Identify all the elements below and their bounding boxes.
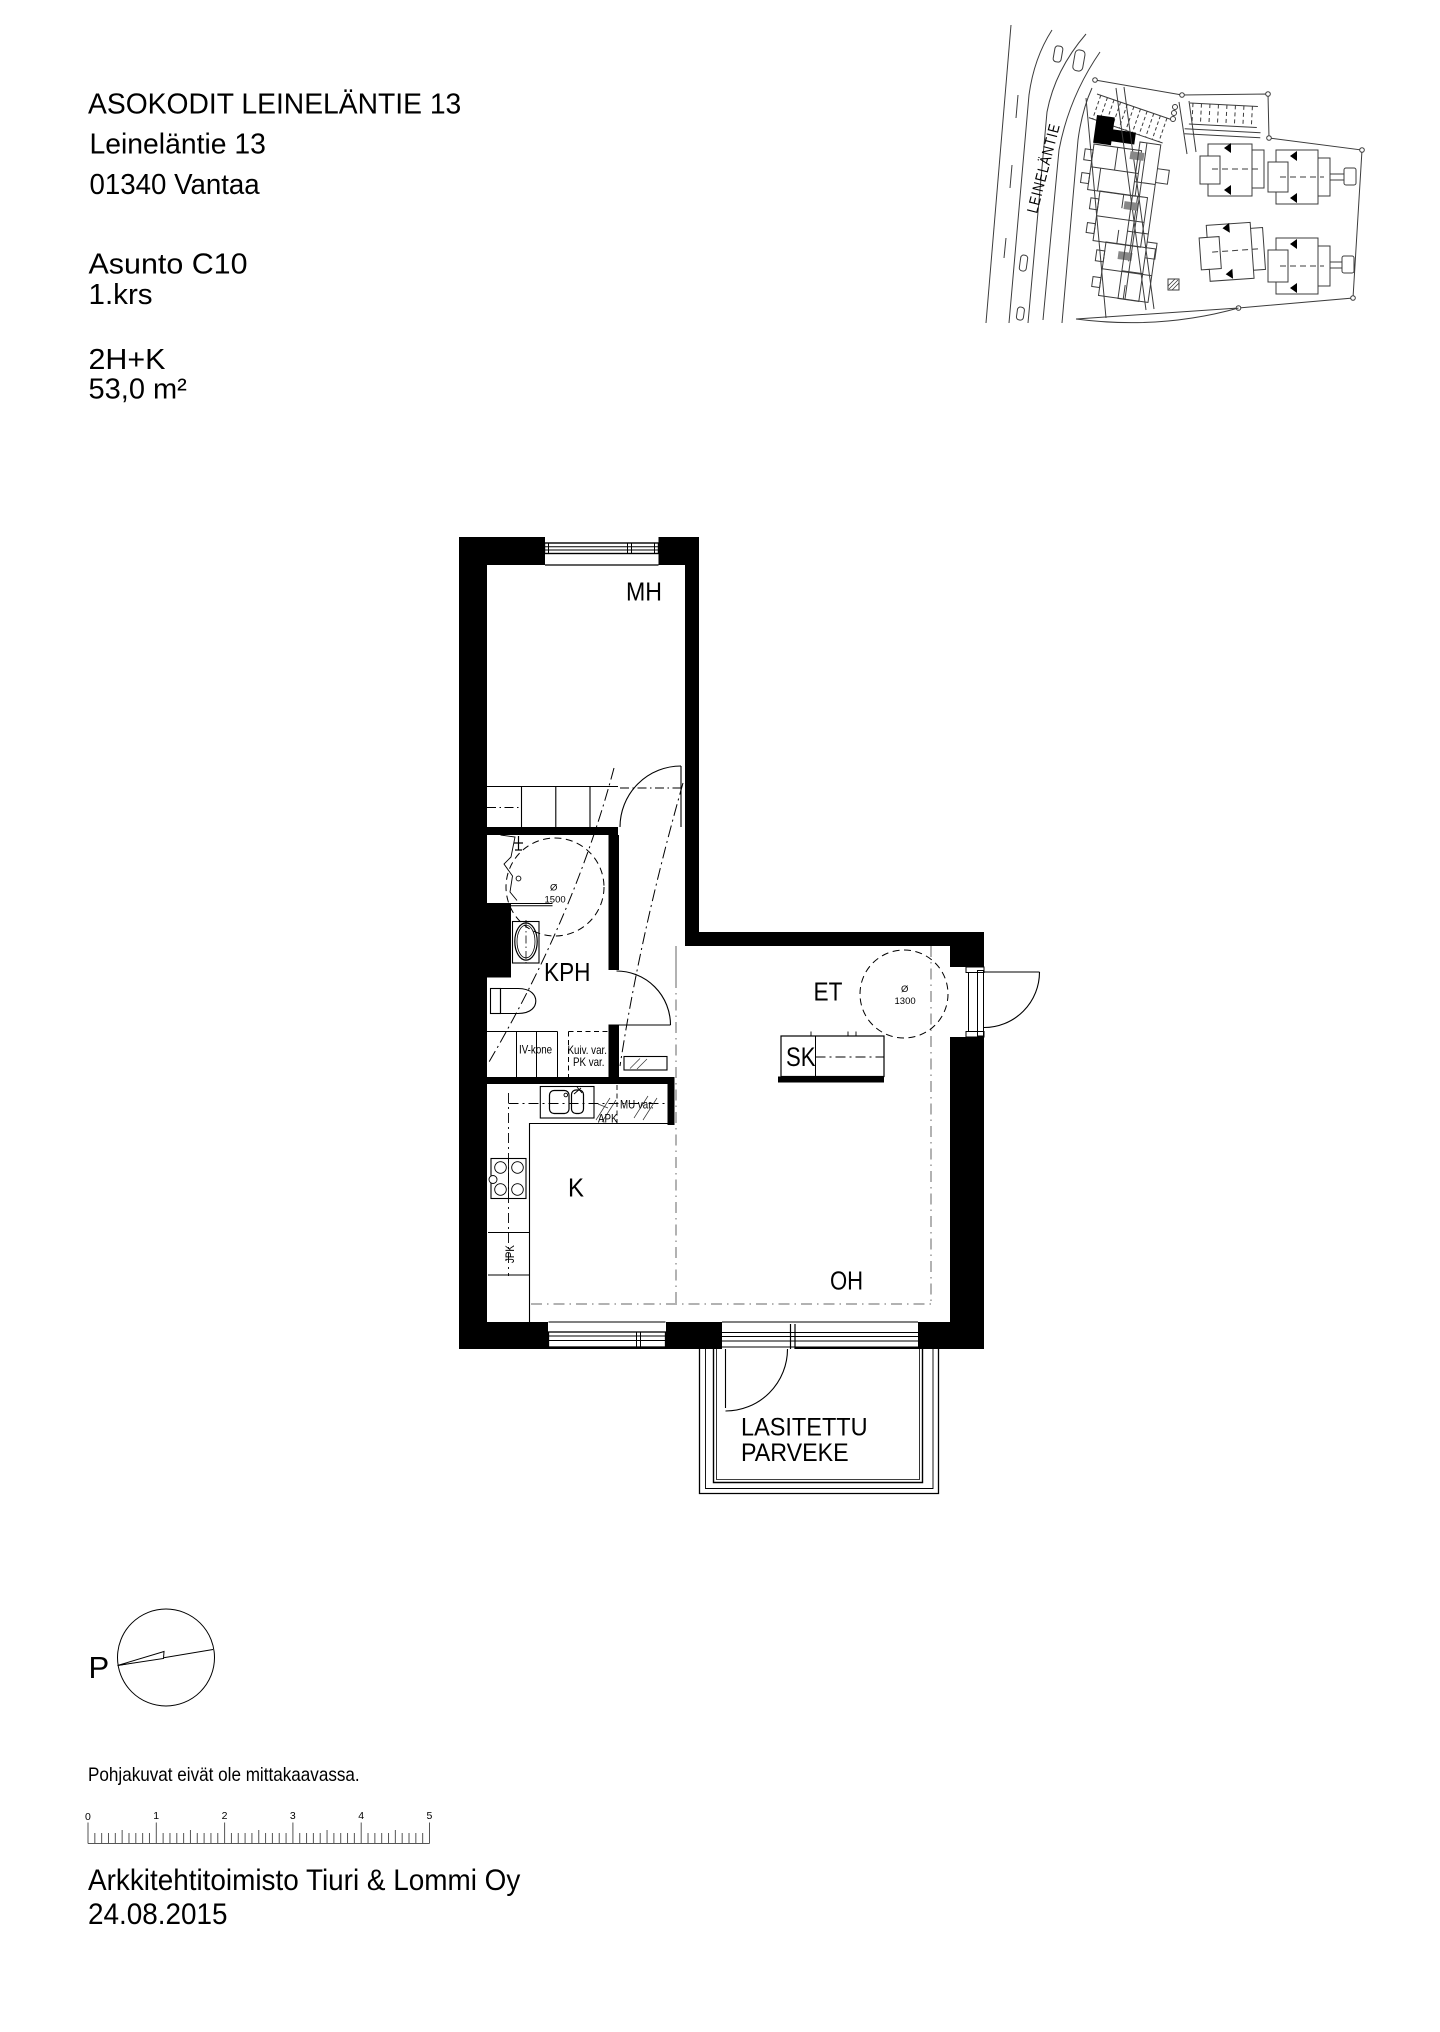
svg-text:3: 3: [290, 1810, 296, 1822]
svg-text:Asunto C10: Asunto C10: [89, 248, 248, 280]
svg-text:PARVEKE: PARVEKE: [741, 1439, 849, 1467]
svg-text:4: 4: [358, 1810, 364, 1822]
svg-text:SK: SK: [786, 1043, 816, 1073]
svg-text:LASITETTU: LASITETTU: [741, 1414, 868, 1442]
svg-text:Pohjakuvat eivät ole mittakaav: Pohjakuvat eivät ole mittakaavassa.: [88, 1764, 360, 1785]
svg-text:1: 1: [153, 1810, 159, 1822]
svg-text:Arkkitehtitoimisto Tiuri & Lom: Arkkitehtitoimisto Tiuri & Lommi Oy: [88, 1864, 521, 1897]
svg-text:ET: ET: [814, 978, 843, 1007]
svg-text:5: 5: [427, 1810, 433, 1822]
svg-text:53,0 m²: 53,0 m²: [89, 373, 188, 405]
svg-text:01340 Vantaa: 01340 Vantaa: [90, 168, 260, 201]
svg-text:PK var.: PK var.: [573, 1056, 604, 1069]
svg-text:OH: OH: [830, 1267, 863, 1296]
svg-text:24.08.2015: 24.08.2015: [88, 1898, 228, 1931]
svg-text:APK: APK: [598, 1113, 618, 1126]
svg-text:2H+K: 2H+K: [89, 344, 166, 376]
svg-text:IV-kone: IV-kone: [519, 1044, 552, 1057]
svg-text:JPK: JPK: [504, 1245, 517, 1263]
svg-text:Leineläntie 13: Leineläntie 13: [90, 128, 266, 160]
svg-text:P: P: [89, 1650, 110, 1685]
svg-text:K: K: [568, 1174, 584, 1203]
svg-text:Ø: Ø: [550, 883, 558, 894]
svg-text:0: 0: [85, 1811, 91, 1823]
svg-text:MH: MH: [626, 578, 662, 607]
svg-text:Ø: Ø: [901, 984, 909, 995]
svg-text:Kuiv. var.: Kuiv. var.: [568, 1044, 607, 1057]
svg-text:MU var.: MU var.: [620, 1099, 654, 1112]
svg-text:1.krs: 1.krs: [89, 278, 153, 311]
svg-text:KPH: KPH: [544, 959, 590, 988]
svg-text:1300: 1300: [895, 996, 916, 1007]
svg-text:ASOKODIT LEINELÄNTIE 13: ASOKODIT LEINELÄNTIE 13: [88, 88, 461, 120]
svg-text:2: 2: [222, 1810, 228, 1822]
